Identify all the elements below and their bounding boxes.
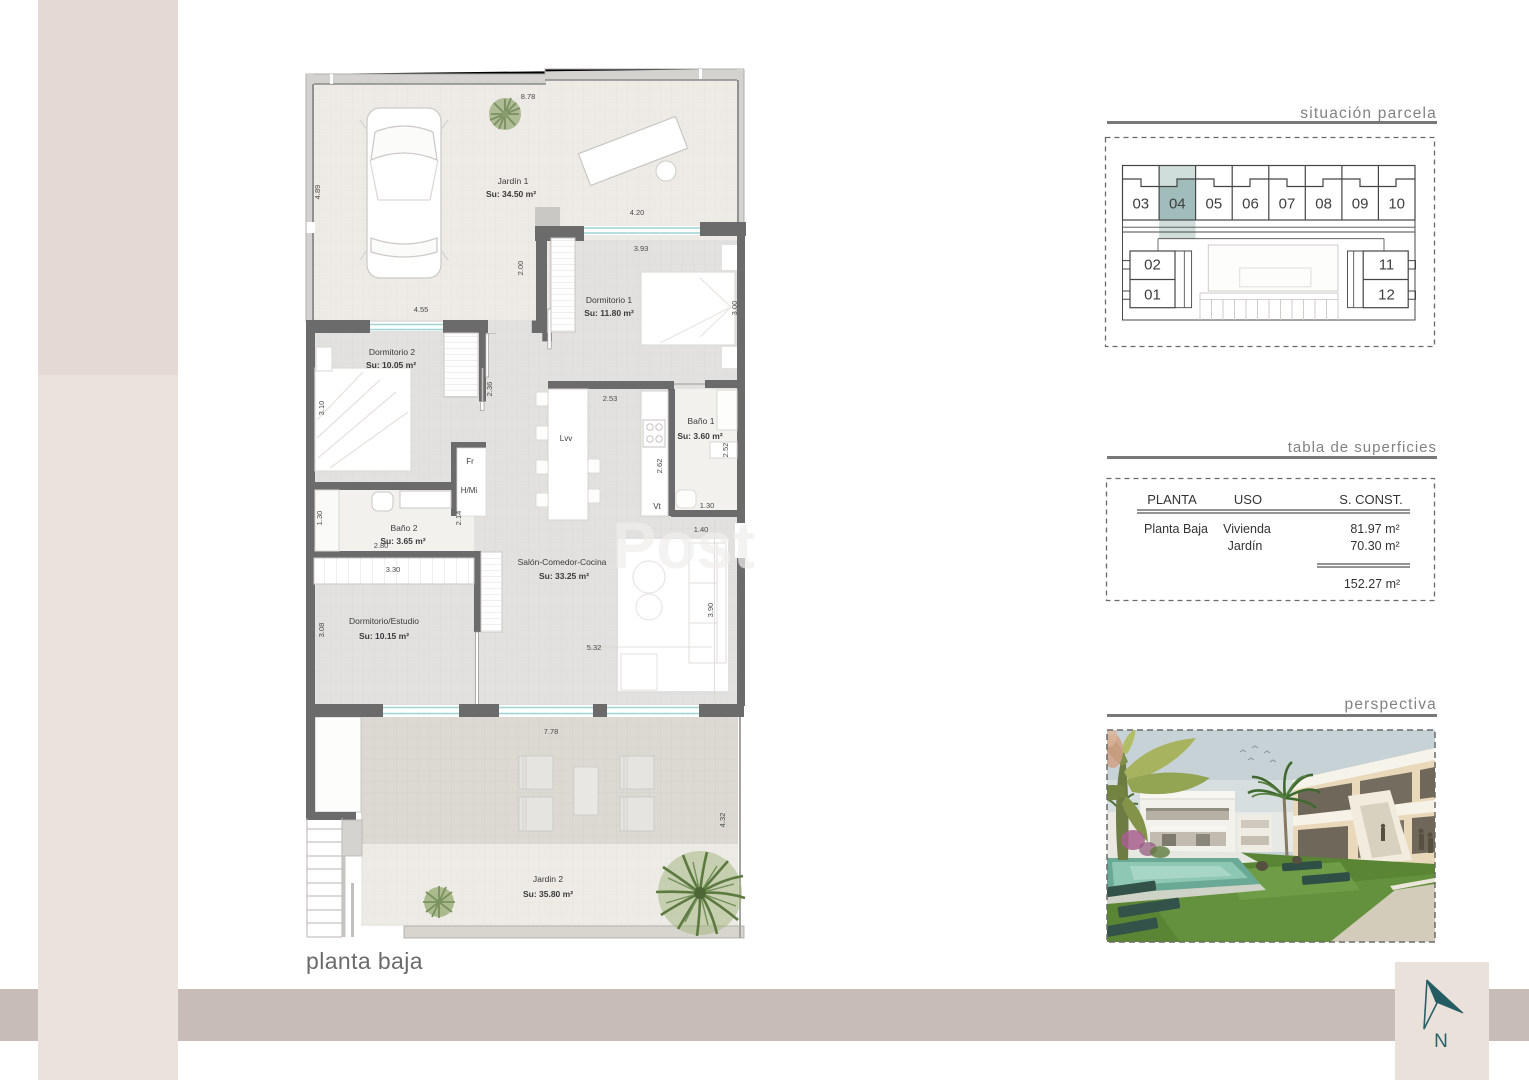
- svg-text:152.27 m²: 152.27 m²: [1344, 577, 1400, 591]
- svg-text:2.36: 2.36: [485, 382, 494, 397]
- svg-text:Jardín 1: Jardín 1: [498, 176, 529, 186]
- svg-text:2.52: 2.52: [721, 443, 730, 458]
- svg-text:Planta Baja: Planta Baja: [1144, 522, 1208, 536]
- svg-text:1.40: 1.40: [694, 525, 709, 534]
- svg-text:81.97 m²: 81.97 m²: [1350, 522, 1399, 536]
- svg-text:01: 01: [1144, 287, 1161, 304]
- svg-text:09: 09: [1352, 196, 1369, 213]
- svg-text:02: 02: [1144, 256, 1161, 273]
- svg-text:H/Mi: H/Mi: [461, 486, 478, 495]
- svg-text:Su: 11.80 m²: Su: 11.80 m²: [584, 308, 634, 318]
- svg-text:2.80: 2.80: [374, 541, 389, 550]
- svg-text:3.00: 3.00: [730, 301, 739, 316]
- svg-text:Su: 10.15 m²: Su: 10.15 m²: [359, 631, 409, 641]
- svg-text:PLANTA: PLANTA: [1147, 492, 1197, 507]
- svg-text:4.20: 4.20: [630, 208, 645, 217]
- svg-text:4.55: 4.55: [414, 305, 429, 314]
- svg-text:N: N: [1434, 1031, 1448, 1052]
- svg-text:3.10: 3.10: [317, 401, 326, 416]
- svg-text:perspectiva: perspectiva: [1345, 696, 1437, 713]
- svg-text:Su: 34.50 m²: Su: 34.50 m²: [486, 189, 536, 199]
- svg-text:Dormitorio/Estudio: Dormitorio/Estudio: [349, 616, 419, 626]
- svg-text:1.30: 1.30: [700, 501, 715, 510]
- svg-text:5.32: 5.32: [587, 643, 602, 652]
- svg-text:planta baja: planta baja: [306, 948, 423, 974]
- svg-text:07: 07: [1279, 196, 1296, 213]
- svg-text:2.14: 2.14: [454, 511, 463, 526]
- svg-text:2.53: 2.53: [603, 394, 618, 403]
- svg-text:1.30: 1.30: [315, 511, 324, 526]
- svg-text:11: 11: [1379, 256, 1395, 273]
- svg-text:Baño 1: Baño 1: [688, 416, 715, 426]
- svg-text:Vivienda: Vivienda: [1223, 522, 1271, 536]
- svg-text:3.93: 3.93: [634, 244, 649, 253]
- svg-text:8.78: 8.78: [521, 92, 536, 101]
- svg-text:08: 08: [1315, 196, 1332, 213]
- svg-text:7.78: 7.78: [544, 727, 559, 736]
- svg-text:Dormitorio 1: Dormitorio 1: [586, 295, 633, 305]
- svg-text:04: 04: [1169, 196, 1186, 213]
- svg-text:3.90: 3.90: [706, 603, 715, 618]
- svg-text:12: 12: [1378, 287, 1395, 304]
- svg-text:Su: 10.05 m²: Su: 10.05 m²: [366, 360, 416, 370]
- svg-text:4.32: 4.32: [718, 813, 727, 828]
- svg-text:Jardin 2: Jardin 2: [533, 874, 564, 884]
- svg-text:USO: USO: [1234, 492, 1262, 507]
- svg-text:2.62: 2.62: [655, 459, 664, 474]
- svg-text:3.30: 3.30: [386, 565, 401, 574]
- svg-text:Fr: Fr: [466, 457, 474, 466]
- svg-text:Jardín: Jardín: [1228, 539, 1263, 553]
- svg-text:Post: Post: [612, 508, 755, 582]
- svg-text:03: 03: [1132, 196, 1149, 213]
- svg-text:10: 10: [1388, 196, 1405, 213]
- svg-text:2.00: 2.00: [516, 261, 525, 276]
- svg-text:Su: 3.60 m²: Su: 3.60 m²: [677, 431, 723, 441]
- svg-text:4.89: 4.89: [313, 185, 322, 200]
- svg-text:Baño 2: Baño 2: [391, 523, 418, 533]
- svg-text:05: 05: [1206, 196, 1223, 213]
- svg-text:tabla de superficies: tabla de superficies: [1288, 439, 1437, 456]
- svg-text:Vt: Vt: [653, 502, 661, 511]
- svg-text:Lvv: Lvv: [560, 434, 572, 443]
- svg-text:S. CONST.: S. CONST.: [1339, 492, 1403, 507]
- svg-text:Dormitorio 2: Dormitorio 2: [369, 347, 416, 357]
- svg-text:Salón-Comedor-Cocina: Salón-Comedor-Cocina: [518, 557, 607, 567]
- svg-text:Su: 35.80 m²: Su: 35.80 m²: [523, 889, 573, 899]
- svg-text:situación parcela: situación parcela: [1300, 105, 1437, 122]
- svg-text:Su: 33.25 m²: Su: 33.25 m²: [539, 571, 589, 581]
- svg-text:06: 06: [1242, 196, 1259, 213]
- svg-text:3.08: 3.08: [317, 623, 326, 638]
- svg-text:70.30 m²: 70.30 m²: [1350, 539, 1399, 553]
